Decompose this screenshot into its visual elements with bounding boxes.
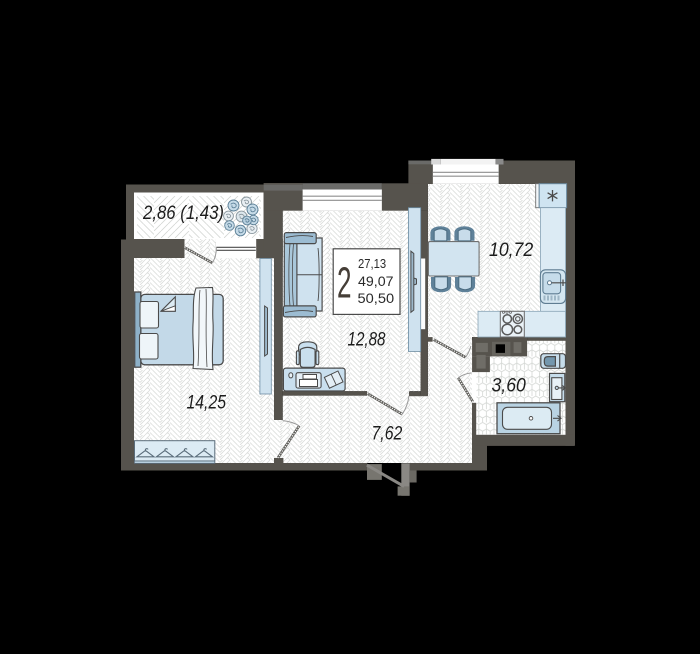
svg-text:14,25: 14,25: [187, 393, 227, 414]
svg-text:2,86 (1,43): 2,86 (1,43): [142, 203, 224, 224]
svg-text:10,72: 10,72: [489, 240, 534, 261]
svg-text:27,13: 27,13: [358, 257, 386, 271]
svg-text:7,62: 7,62: [372, 424, 403, 445]
svg-text:49,07: 49,07: [358, 274, 394, 289]
svg-text:50,50: 50,50: [358, 291, 395, 306]
svg-text:2: 2: [337, 259, 352, 308]
svg-text:3,60: 3,60: [492, 376, 527, 397]
svg-text:12,88: 12,88: [348, 330, 386, 351]
